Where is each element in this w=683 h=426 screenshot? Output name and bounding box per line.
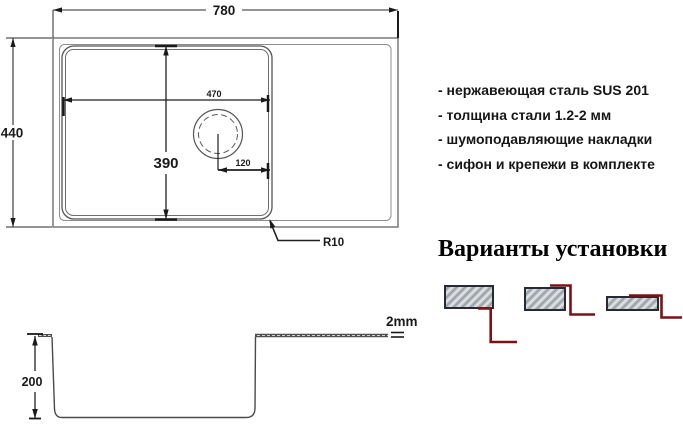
variant-undermount [445, 286, 517, 342]
feature-item: - нержавеющая сталь SUS 201 [438, 78, 655, 103]
dim-440-label: 440 [1, 126, 24, 141]
dim-2mm-group: 2mm [386, 314, 418, 337]
dim-780-label: 780 [213, 3, 236, 18]
installation-title: Варианты установки [438, 236, 667, 263]
dim-r10-label: R10 [323, 237, 344, 249]
feature-item: - шумоподавляющие накладки [438, 127, 655, 152]
feature-item: - сифон и крепежи в комплекте [438, 152, 655, 177]
dim-390-label: 390 [153, 155, 178, 172]
countertop-section-2 [525, 288, 565, 310]
installation-variants [445, 286, 682, 343]
features-list: - нержавеющая сталь SUS 201 - толщина ст… [438, 78, 655, 176]
technical-drawing-page: 780 440 470 [0, 0, 683, 426]
countertop-section-3 [607, 297, 658, 310]
section-view: 200 2mm [19, 314, 418, 419]
variant-overmount [607, 296, 682, 318]
feature-item: - толщина стали 1.2-2 мм [438, 103, 655, 128]
dim-470-label: 470 [206, 89, 221, 99]
sink-edge-line-1 [478, 309, 517, 343]
dim-2mm-label: 2mm [386, 314, 418, 329]
drawing-svg: 780 440 470 [0, 0, 683, 426]
dim-440-group: 440 [0, 38, 52, 227]
variant-flush-mount [525, 286, 595, 315]
dim-r10-group: R10 [270, 219, 345, 249]
top-view: 780 440 470 [0, 2, 398, 249]
section-bowl-profile [52, 337, 256, 418]
dim-780-group: 780 [53, 2, 398, 38]
dim-200-label: 200 [22, 375, 43, 389]
countertop-section-1 [445, 286, 493, 308]
dim-120-label: 120 [235, 158, 250, 168]
dim-390-group: 390 [149, 46, 183, 220]
dim-200-group: 200 [19, 334, 46, 419]
